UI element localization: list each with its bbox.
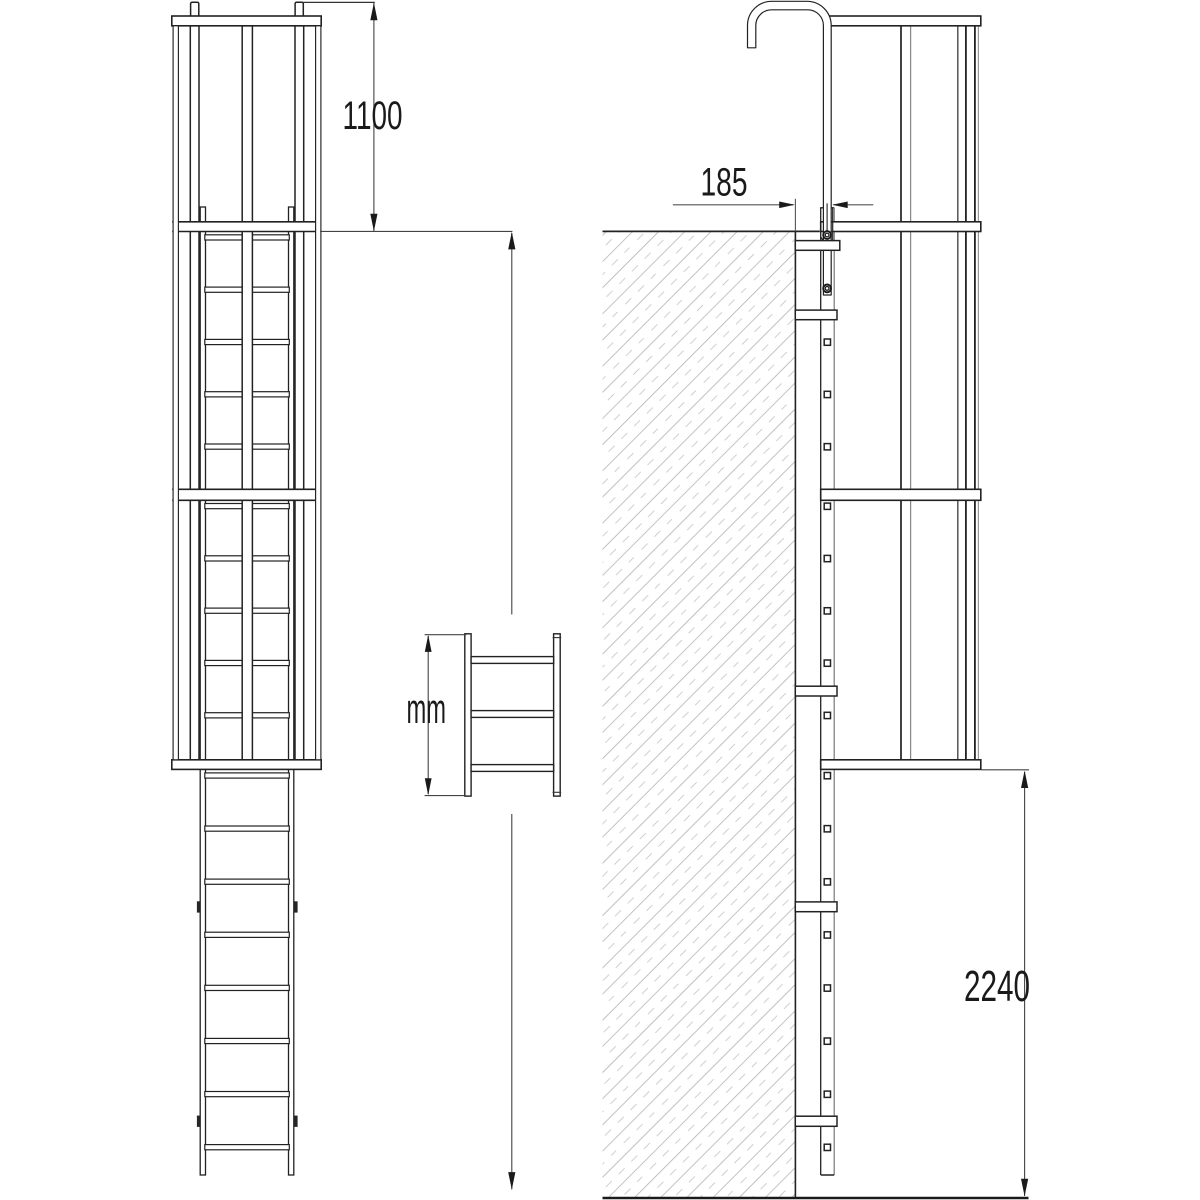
svg-text:2240: 2240 xyxy=(964,962,1030,1011)
svg-text:185: 185 xyxy=(701,161,748,205)
svg-text:mm: mm xyxy=(407,685,447,732)
svg-text:1100: 1100 xyxy=(343,94,403,138)
